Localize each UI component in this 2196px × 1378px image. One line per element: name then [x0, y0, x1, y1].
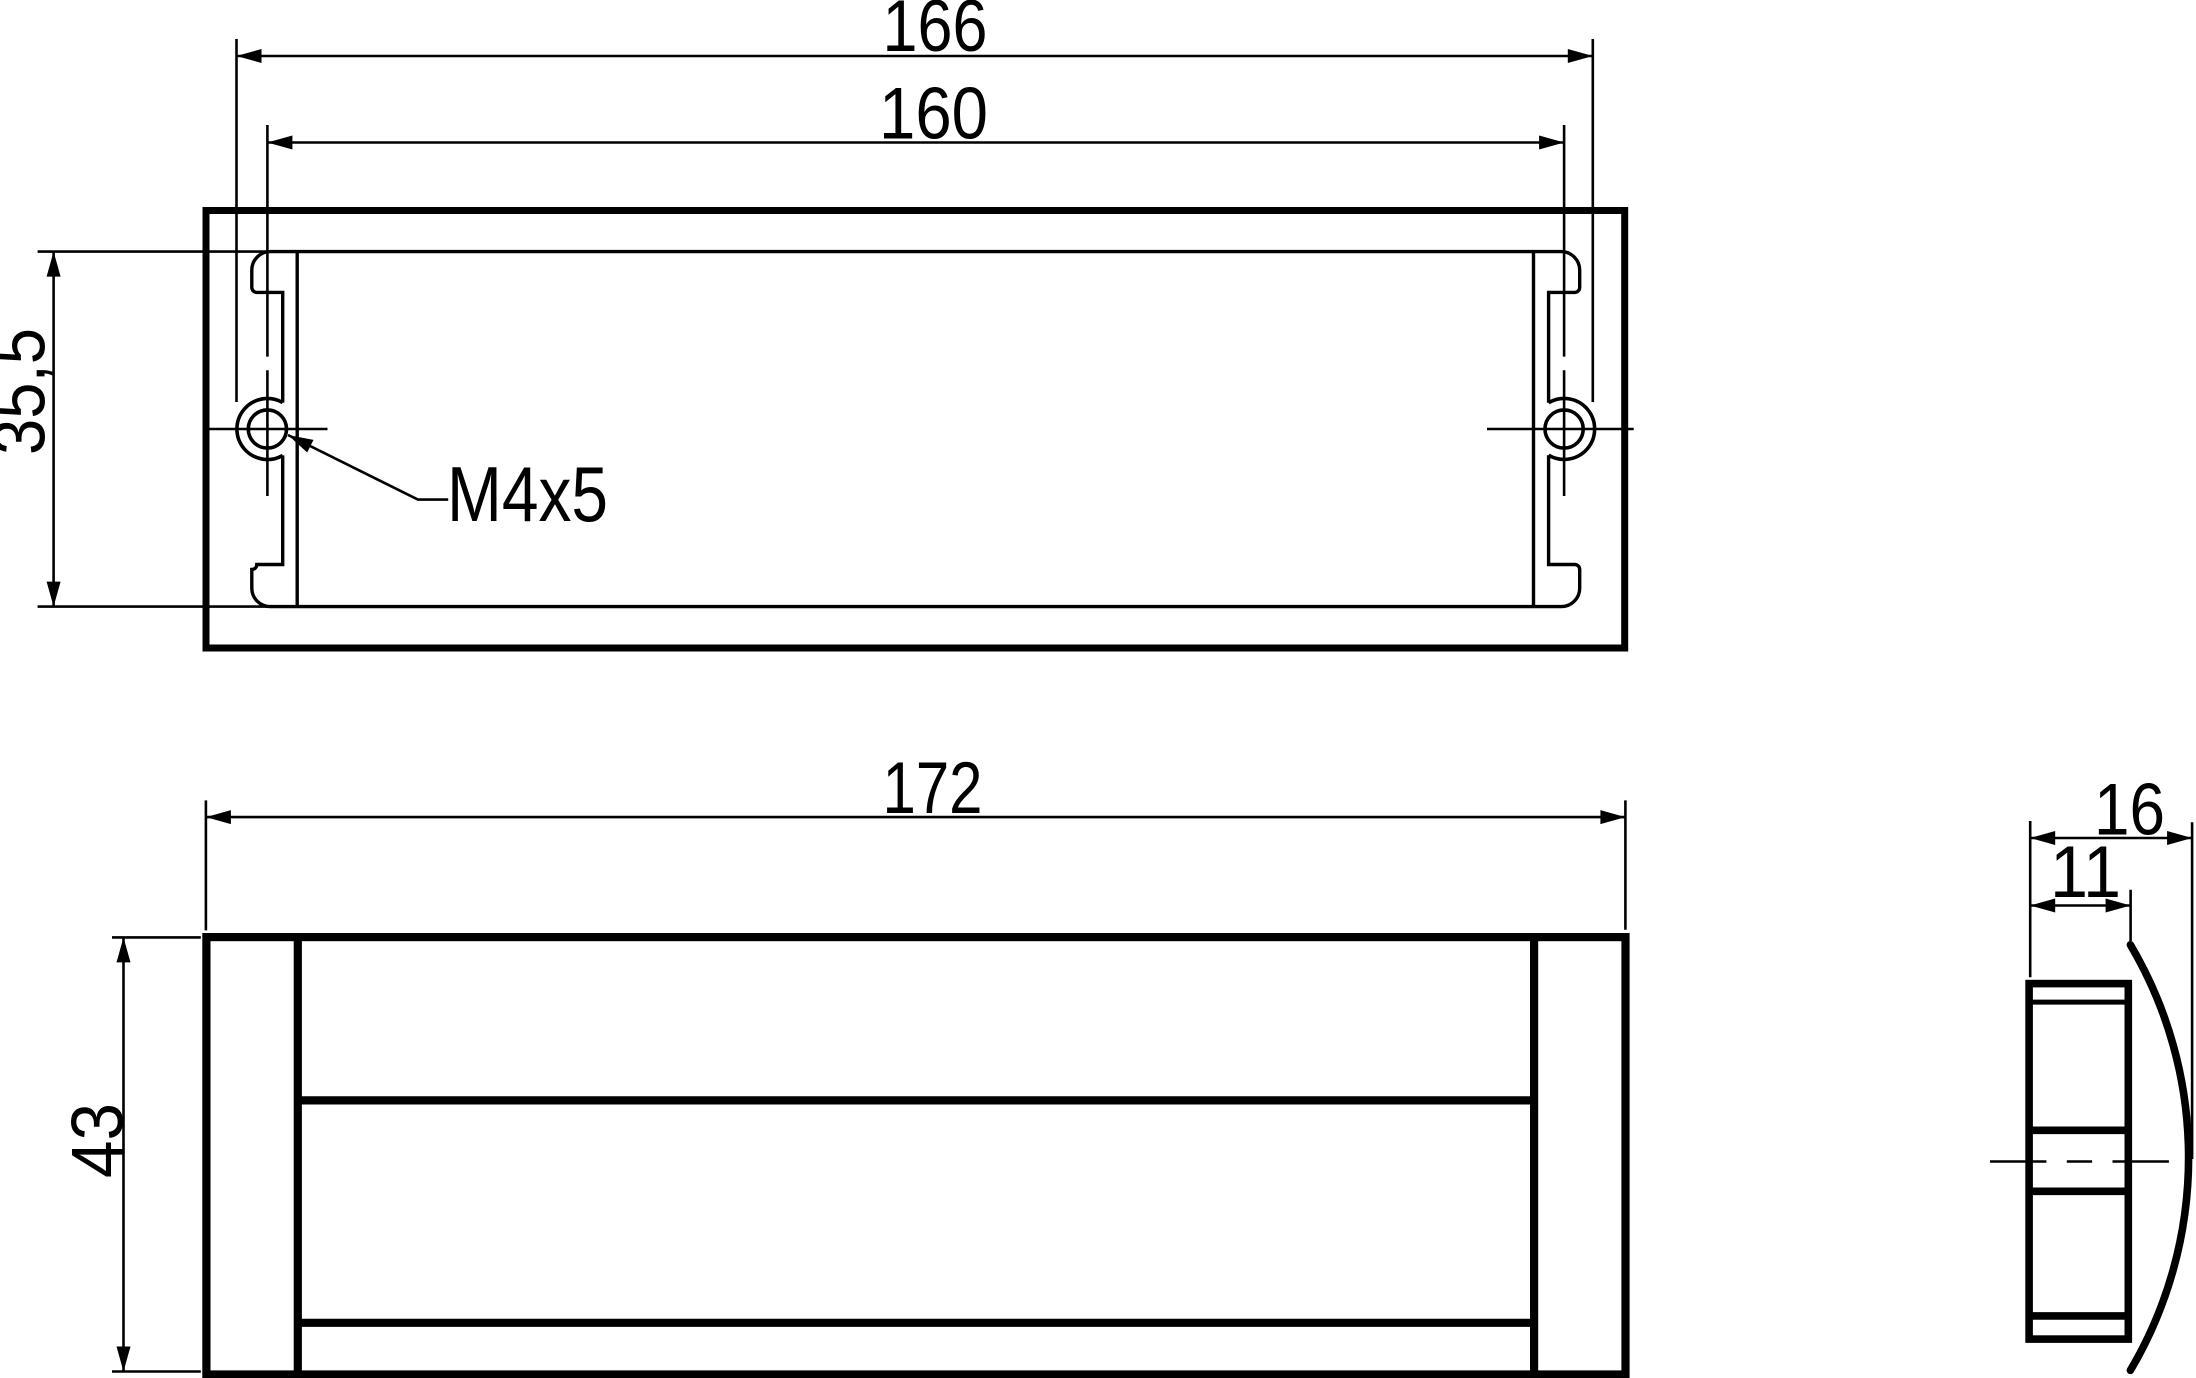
svg-text:11: 11 [2050, 832, 2121, 913]
svg-text:M4x5: M4x5 [447, 450, 608, 538]
svg-text:43: 43 [58, 1103, 139, 1178]
svg-text:35,5: 35,5 [0, 328, 61, 455]
svg-text:160: 160 [879, 74, 988, 155]
svg-text:172: 172 [883, 748, 983, 829]
svg-text:166: 166 [883, 0, 988, 67]
